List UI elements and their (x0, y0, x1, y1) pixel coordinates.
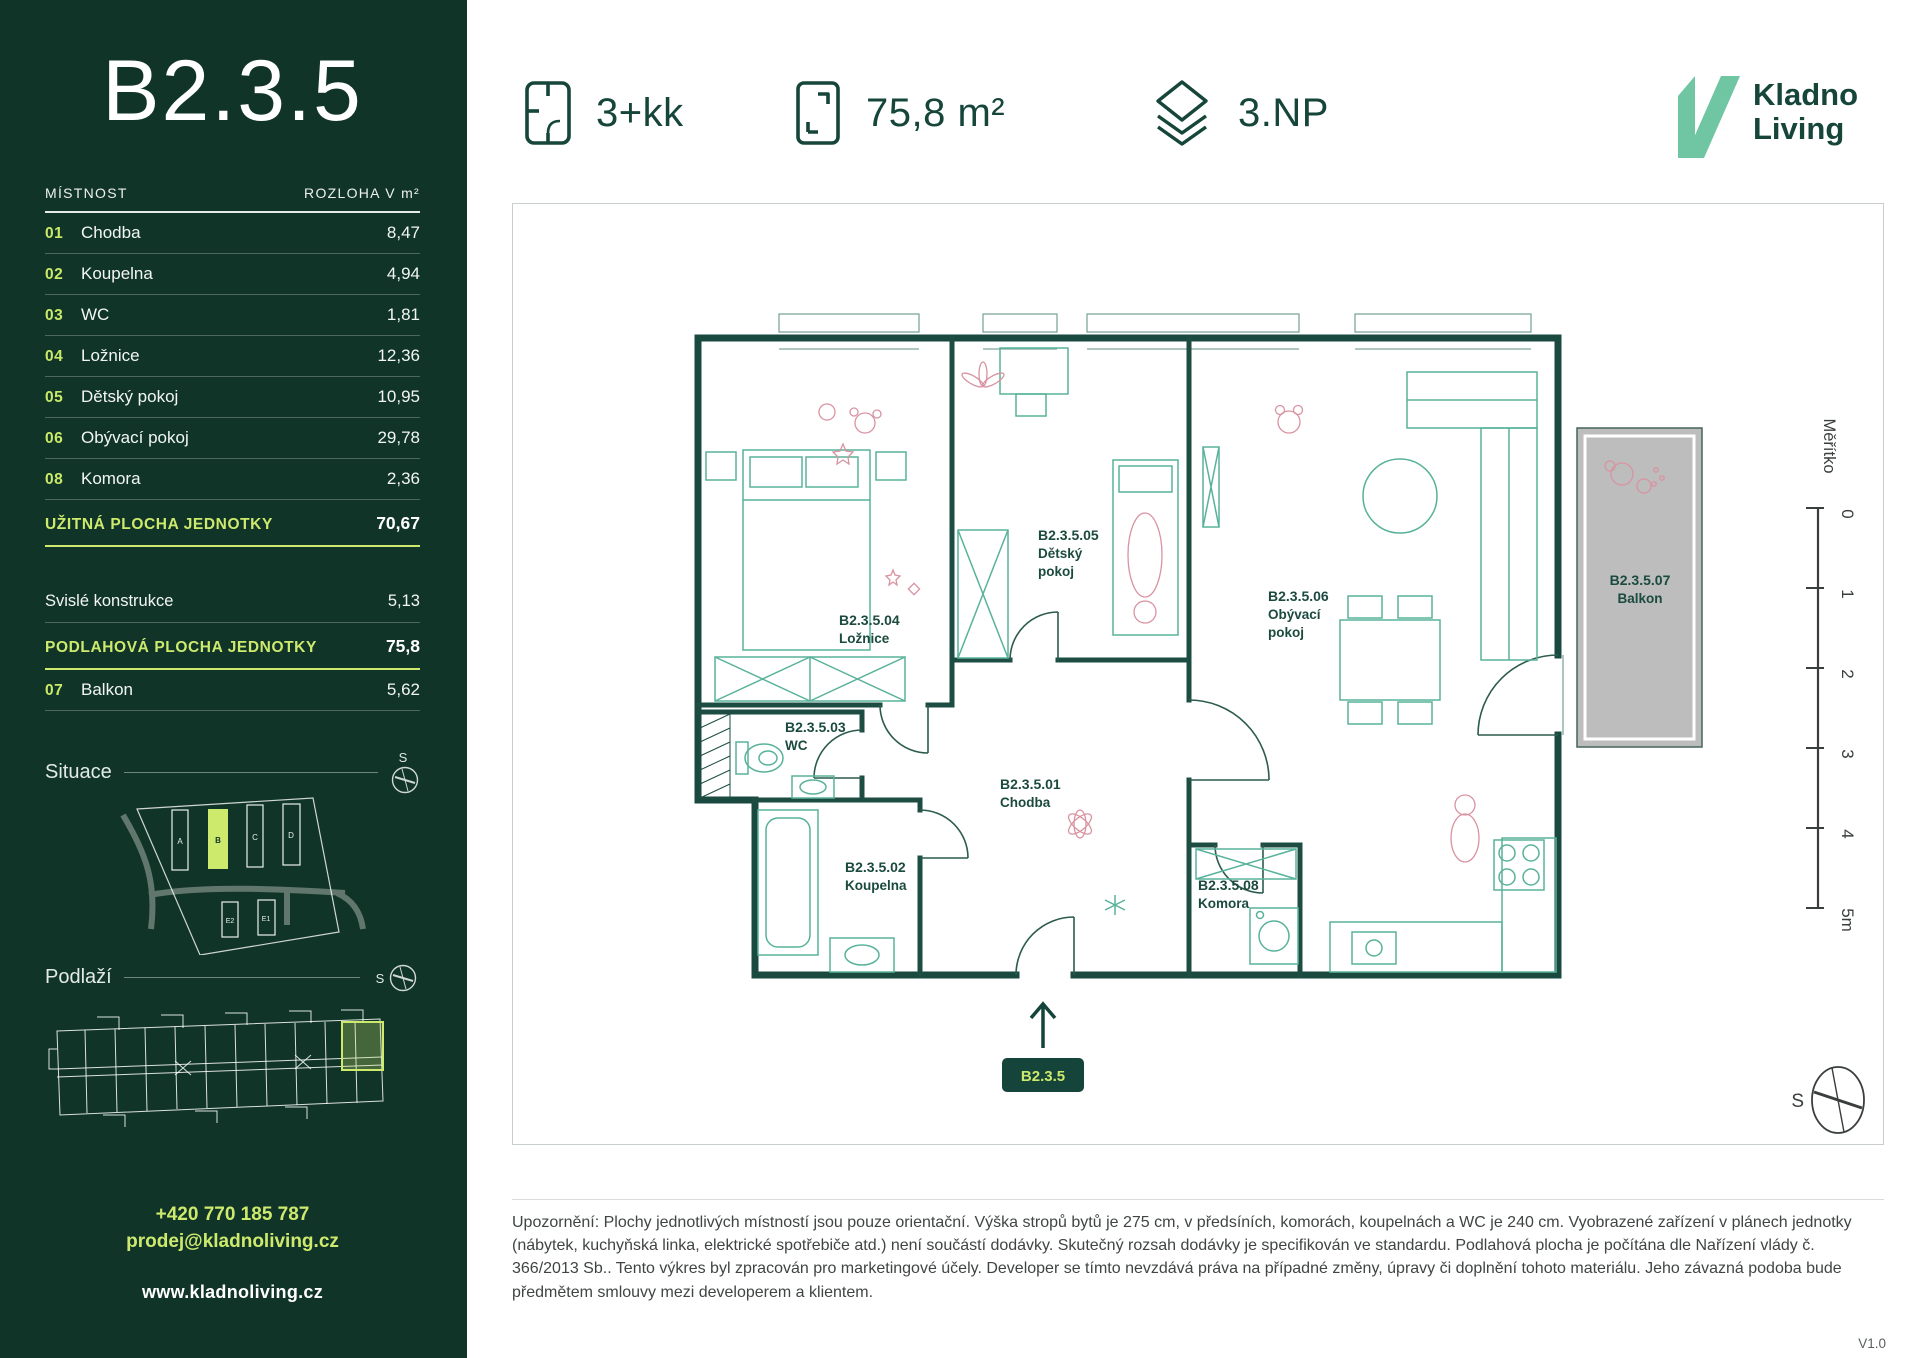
svg-text:Dětský: Dětský (1038, 546, 1083, 561)
contact-block: +420 770 185 787 prodej@kladnoliving.cz … (45, 1201, 420, 1303)
row-area: 29,78 (377, 428, 420, 448)
svg-text:3: 3 (1838, 749, 1857, 758)
svg-text:B2.3.5.03: B2.3.5.03 (785, 719, 846, 735)
compass-icon: S (372, 963, 420, 993)
layout-value: 3+kk (596, 91, 684, 136)
row-name: Obývací pokoj (81, 428, 377, 448)
row-num: 04 (45, 348, 81, 366)
row-name: Komora (81, 469, 387, 489)
room-label-wc: B2.3.5.03 WC (785, 719, 846, 753)
podlazi-label: Podlaží (45, 966, 112, 989)
floor-strip (45, 1003, 420, 1131)
stat-floor: 3.NP (1152, 80, 1329, 146)
highlighted-unit (342, 1022, 383, 1070)
row-num: 03 (45, 307, 81, 325)
row-num: 07 (45, 682, 81, 700)
divider (124, 772, 378, 773)
windows (779, 314, 1563, 735)
building-c-label: C (252, 833, 258, 842)
col-room: MÍSTNOST (45, 185, 128, 201)
situace-label: Situace (45, 761, 112, 784)
building-b-label: B (215, 836, 221, 845)
building-d-label: D (288, 831, 294, 840)
stat-area: 75,8 m² (795, 80, 1005, 146)
logo-line1: Kladno (1753, 78, 1858, 112)
page: B2.3.5 MÍSTNOST ROZLOHA V m² 01 Chodba 8… (0, 0, 1920, 1358)
room-label-komora: B2.3.5.08 Komora (1198, 877, 1259, 911)
stat-layout: 3+kk (524, 80, 684, 146)
usable-area-label: UŽITNÁ PLOCHA JEDNOTKY (45, 516, 376, 534)
row-name: Koupelna (81, 264, 387, 284)
table-row: 06 Obývací pokoj 29,78 (45, 418, 420, 459)
svg-text:Chodba: Chodba (1000, 795, 1051, 810)
svg-text:Ložnice: Ložnice (839, 631, 890, 646)
kladno-living-logo: Kladno Living (1676, 74, 1858, 158)
room-table: MÍSTNOST ROZLOHA V m² 01 Chodba 8,47 02 … (45, 185, 420, 711)
compass-letter: S (376, 971, 385, 986)
svg-text:B2.3.5.04: B2.3.5.04 (839, 612, 900, 628)
svg-text:Obývací: Obývací (1268, 607, 1322, 622)
svg-text:B2.3.5.02: B2.3.5.02 (845, 859, 906, 875)
row-name: WC (81, 305, 387, 325)
plan-compass-letter: S (1791, 1091, 1804, 1112)
scale-ruler: Měřítko 0 1 2 3 4 5m (1806, 418, 1857, 931)
svg-text:2: 2 (1838, 669, 1857, 678)
door-swings (814, 612, 1558, 975)
version-label: V1.0 (1858, 1336, 1886, 1351)
room-label-detsky-pokoj: B2.3.5.05 Dětský pokoj (1038, 527, 1099, 579)
svg-text:0: 0 (1838, 509, 1857, 518)
row-area: 4,94 (387, 264, 420, 284)
svg-text:5m: 5m (1838, 908, 1857, 932)
podlazi-section-header: Podlaží S (45, 963, 420, 993)
table-row: 05 Dětský pokoj 10,95 (45, 377, 420, 418)
row-area: 1,81 (387, 305, 420, 325)
svg-text:B2.3.5.08: B2.3.5.08 (1198, 877, 1259, 893)
row-name: Ložnice (81, 346, 377, 366)
unit-title: B2.3.5 (45, 44, 420, 139)
room-label-obyvaci-pokoj: B2.3.5.06 Obývací pokoj (1268, 588, 1329, 640)
usable-area-row: UŽITNÁ PLOCHA JEDNOTKY 70,67 (45, 500, 420, 547)
row-area: 10,95 (377, 387, 420, 407)
svg-text:Komora: Komora (1198, 896, 1249, 911)
row-area: 2,36 (387, 469, 420, 489)
row-num: 05 (45, 389, 81, 407)
shaft-hatch (700, 714, 730, 798)
row-num: 02 (45, 266, 81, 284)
table-row: 08 Komora 2,36 (45, 459, 420, 500)
room-label-chodba: B2.3.5.01 Chodba (1000, 776, 1061, 810)
scale-label: Měřítko (1820, 418, 1838, 473)
row-area: 8,47 (387, 223, 420, 243)
svg-text:1: 1 (1838, 589, 1857, 598)
col-area: ROZLOHA V m² (304, 185, 420, 201)
divider (124, 977, 360, 978)
sidebar: B2.3.5 MÍSTNOST ROZLOHA V m² 01 Chodba 8… (0, 0, 467, 1358)
table-row: 04 Ložnice 12,36 (45, 336, 420, 377)
svg-text:pokoj: pokoj (1268, 625, 1304, 640)
logo-line2: Living (1753, 112, 1858, 146)
contact-email[interactable]: prodej@kladnoliving.cz (45, 1228, 420, 1256)
svg-text:Balkon: Balkon (1617, 591, 1662, 606)
table-header: MÍSTNOST ROZLOHA V m² (45, 185, 420, 213)
site-map: A B C D E2 E1 (45, 797, 420, 955)
svg-text:B2.3.5.07: B2.3.5.07 (1610, 572, 1671, 588)
construction-row: Svislé konstrukce 5,13 (45, 581, 420, 623)
contact-phone[interactable]: +420 770 185 787 (45, 1201, 420, 1229)
area-value: 75,8 m² (866, 91, 1005, 136)
floor-area-label: PODLAHOVÁ PLOCHA JEDNOTKY (45, 639, 386, 657)
row-area: 5,62 (387, 680, 420, 700)
unit-badge-label: B2.3.5 (1021, 1068, 1065, 1085)
room-label-koupelna: B2.3.5.02 Koupelna (845, 859, 907, 893)
floor-area-value: 75,8 (386, 636, 420, 657)
plan-compass-icon: S (1791, 1067, 1864, 1133)
site-buildings: A B C D E2 E1 (172, 804, 300, 937)
row-name: Chodba (81, 223, 387, 243)
row-num: 01 (45, 225, 81, 243)
row-num: 08 (45, 471, 81, 489)
logo-mark-icon (1676, 74, 1740, 158)
row-num: 06 (45, 430, 81, 448)
row-area: 12,36 (377, 346, 420, 366)
contact-web[interactable]: www.kladnoliving.cz (45, 1282, 420, 1303)
table-row: 02 Koupelna 4,94 (45, 254, 420, 295)
disclaimer-text: Upozornění: Plochy jednotlivých místnost… (512, 1211, 1864, 1304)
usable-area-value: 70,67 (376, 513, 420, 534)
footer-divider (512, 1199, 1884, 1200)
building-e2-label: E2 (226, 918, 235, 925)
floor-area-row: PODLAHOVÁ PLOCHA JEDNOTKY 75,8 (45, 623, 420, 670)
svg-text:B2.3.5.01: B2.3.5.01 (1000, 776, 1061, 792)
svg-text:Koupelna: Koupelna (845, 878, 907, 893)
row-name: Dětský pokoj (81, 387, 377, 407)
situace-section-header: Situace S (45, 749, 420, 797)
svg-text:pokoj: pokoj (1038, 564, 1074, 579)
table-row: 03 WC 1,81 (45, 295, 420, 336)
floor-layers-icon (1152, 80, 1212, 146)
row-name: Balkon (81, 680, 387, 700)
entrance-marker: B2.3.5 (1002, 1004, 1084, 1092)
floor-plan: B2.3.5.01 Chodba B2.3.5.02 Koupelna B2.3… (467, 160, 1920, 1160)
svg-text:4: 4 (1838, 829, 1857, 838)
logo-text: Kladno Living (1753, 78, 1858, 146)
scale-ticks: 0 1 2 3 4 5m (1838, 509, 1857, 932)
building-a-label: A (177, 837, 183, 846)
table-row: 01 Chodba 8,47 (45, 213, 420, 254)
floorplan-icon (524, 80, 573, 146)
floor-value: 3.NP (1238, 91, 1329, 136)
construction-label: Svislé konstrukce (45, 592, 388, 611)
construction-value: 5,13 (388, 592, 420, 611)
svg-text:WC: WC (785, 738, 808, 753)
svg-text:B2.3.5.05: B2.3.5.05 (1038, 527, 1099, 543)
building-e1-label: E1 (262, 916, 271, 923)
area-icon (795, 80, 841, 146)
balcony-row: 07 Balkon 5,62 (45, 670, 420, 711)
svg-text:B2.3.5.06: B2.3.5.06 (1268, 588, 1329, 604)
compass-icon: S (390, 749, 420, 797)
compass-letter: S (399, 750, 408, 765)
